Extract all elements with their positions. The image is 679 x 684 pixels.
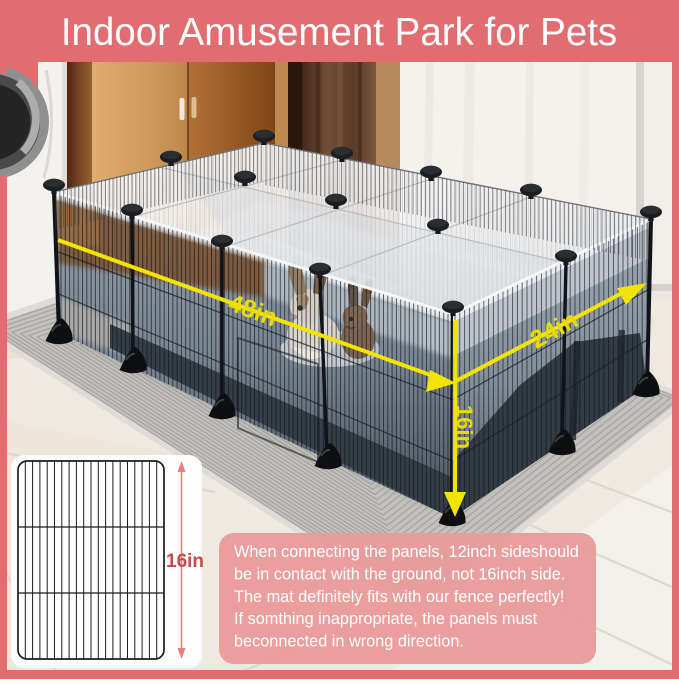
svg-text:The mat definitely fits with o: The mat definitely fits with our fence p… bbox=[234, 588, 564, 606]
svg-text:16in: 16in bbox=[452, 405, 477, 449]
svg-text:When connecting the panels, 12: When connecting the panels, 12inch sides… bbox=[234, 543, 579, 561]
svg-text:16in: 16in bbox=[166, 551, 204, 572]
svg-text:beconnected in wrong direction: beconnected in wrong direction. bbox=[234, 633, 464, 651]
svg-text:be in contact with the ground,: be in contact with the ground, not 16inc… bbox=[234, 565, 565, 583]
svg-text:If somthing inappropriate, the: If somthing inappropriate, the panels mu… bbox=[234, 610, 538, 628]
svg-text:Indoor Amusement Park for Pets: Indoor Amusement Park for Pets bbox=[61, 11, 617, 54]
